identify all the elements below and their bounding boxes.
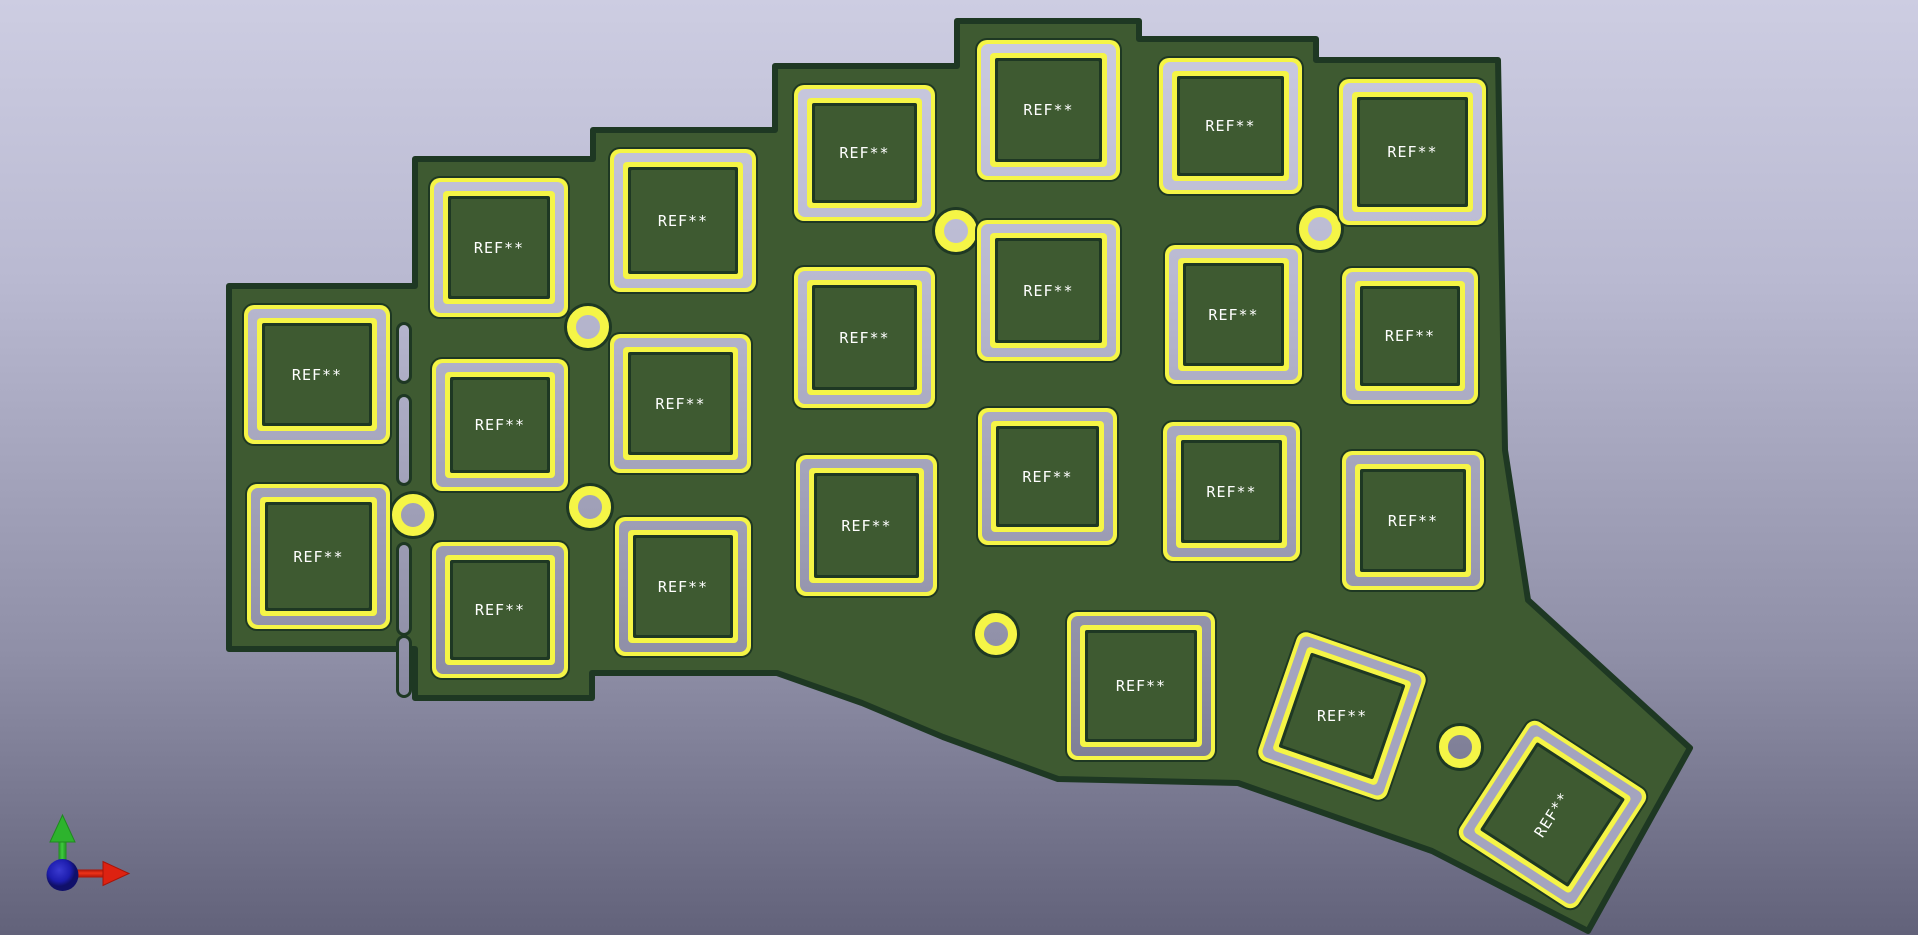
switch-footprint: REF** — [1157, 56, 1304, 196]
footprint-core: REF** — [453, 563, 547, 657]
silk-outline-inner: REF** — [1176, 435, 1287, 548]
reference-designator-label: REF** — [839, 144, 889, 162]
silk-outline-outer: REF** — [977, 220, 1120, 361]
pad-ring-silver: REF** — [1346, 272, 1474, 400]
footprint-core: REF** — [451, 199, 547, 296]
switch-footprint: REF** — [1340, 449, 1486, 592]
pad-inner-edge: REF** — [1360, 469, 1466, 572]
silk-outline-inner: REF** — [807, 280, 922, 395]
silk-outline-inner: REF** — [809, 468, 924, 583]
axis-orientation-gizmo — [10, 795, 140, 910]
breakaway-slot — [399, 638, 409, 695]
footprint-core: REF** — [1186, 266, 1281, 363]
silk-outline-outer: REF** — [1067, 612, 1215, 760]
silk-outline-outer: REF** — [432, 542, 568, 678]
footprint-core: REF** — [1484, 746, 1621, 883]
pad-inner-edge: REF** — [1278, 652, 1405, 779]
plated-hole — [1439, 726, 1481, 768]
pad-ring-silver: REF** — [436, 546, 564, 674]
reference-designator-label: REF** — [1317, 707, 1367, 725]
pad-ring-silver: REF** — [981, 224, 1116, 357]
pad-ring-silver: REF** — [436, 363, 564, 487]
silk-outline-outer: REF** — [430, 178, 568, 317]
pad-ring-silver: REF** — [1071, 616, 1211, 756]
pad-inner-edge: REF** — [450, 560, 550, 660]
pad-inner-edge: REF** — [1480, 742, 1625, 887]
pad-ring-silver: REF** — [798, 271, 931, 404]
switch-footprint: REF** — [1340, 266, 1480, 406]
silk-outline-outer: REF** — [432, 359, 568, 491]
silk-outline-outer: REF** — [244, 305, 390, 444]
reference-designator-label: REF** — [1387, 143, 1437, 161]
reference-designator-label: REF** — [658, 212, 708, 230]
silk-outline-inner: REF** — [623, 162, 743, 279]
silk-outline-inner: REF** — [445, 372, 555, 478]
switch-footprint: REF** — [1065, 610, 1217, 762]
pad-ring-silver: REF** — [434, 182, 564, 313]
pad-ring-silver: REF** — [800, 459, 933, 592]
silk-outline-outer: REF** — [796, 455, 937, 596]
switch-footprint: REF** — [428, 176, 570, 319]
silk-outline-inner: REF** — [990, 53, 1107, 167]
footprint-core: REF** — [998, 61, 1099, 159]
reference-designator-label: REF** — [1022, 468, 1072, 486]
footprint-core: REF** — [631, 355, 730, 452]
pad-inner-edge: REF** — [1177, 76, 1284, 176]
pad-ring-silver: REF** — [251, 488, 386, 625]
plated-hole — [1299, 208, 1341, 250]
switch-footprint: REF** — [792, 83, 937, 223]
reference-designator-label: REF** — [841, 517, 891, 535]
plated-hole — [935, 210, 977, 252]
silk-outline-inner: REF** — [1355, 281, 1465, 391]
silk-outline-inner: REF** — [1080, 625, 1202, 747]
pad-ring-silver: REF** — [614, 338, 747, 469]
pad-inner-edge: REF** — [996, 426, 1099, 527]
x-axis-arrow — [72, 862, 129, 886]
footprint-core: REF** — [636, 538, 730, 635]
switch-footprint: REF** — [1337, 77, 1488, 227]
footprint-core: REF** — [1088, 633, 1194, 739]
z-axis-sphere — [47, 859, 79, 891]
switch-footprint: REF** — [608, 332, 753, 475]
pad-inner-edge: REF** — [1360, 286, 1460, 386]
pad-ring-silver: REF** — [1169, 249, 1298, 380]
breakaway-slot — [399, 397, 409, 483]
switch-footprint: REF** — [976, 406, 1119, 547]
silk-outline-outer: REF** — [610, 334, 751, 473]
reference-designator-label: REF** — [1023, 282, 1073, 300]
pad-inner-edge: REF** — [633, 535, 733, 638]
pad-ring-silver: REF** — [1167, 426, 1296, 557]
pad-ring-silver: REF** — [981, 44, 1116, 176]
reference-designator-label: REF** — [1385, 327, 1435, 345]
silk-outline-inner: REF** — [991, 421, 1104, 532]
switch-footprint: REF** — [242, 303, 392, 446]
footprint-core: REF** — [1180, 79, 1281, 173]
reference-designator-label: REF** — [658, 578, 708, 596]
footprint-core: REF** — [1363, 472, 1463, 569]
switch-footprint: REF** — [613, 515, 753, 658]
pad-ring-silver: REF** — [614, 153, 752, 288]
pad-inner-edge: REF** — [1181, 440, 1282, 543]
switch-footprint: REF** — [975, 38, 1122, 182]
footprint-core: REF** — [265, 326, 369, 423]
silk-outline-inner: REF** — [628, 530, 738, 643]
reference-designator-label: REF** — [475, 601, 525, 619]
pad-inner-edge: REF** — [262, 323, 372, 426]
silk-outline-inner: REF** — [443, 191, 555, 304]
silk-outline-inner: REF** — [1172, 71, 1289, 181]
pad-inner-edge: REF** — [812, 103, 917, 203]
silk-outline-inner: REF** — [1352, 92, 1473, 212]
pad-inner-edge: REF** — [995, 238, 1102, 343]
silk-outline-outer: REF** — [615, 517, 751, 656]
silk-outline-outer: REF** — [978, 408, 1117, 545]
pad-inner-edge: REF** — [995, 58, 1102, 162]
footprint-core: REF** — [1360, 100, 1465, 204]
silk-outline-outer: REF** — [794, 85, 935, 221]
reference-designator-label: REF** — [293, 548, 343, 566]
pad-inner-edge: REF** — [265, 502, 372, 611]
pad-inner-edge: REF** — [450, 377, 550, 473]
pad-inner-edge: REF** — [1183, 263, 1284, 366]
footprint-core: REF** — [268, 505, 369, 608]
silk-outline-inner: REF** — [807, 98, 922, 208]
footprint-core: REF** — [1282, 656, 1401, 775]
pad-inner-edge: REF** — [1085, 630, 1197, 742]
silk-outline-inner: REF** — [257, 318, 377, 431]
silk-outline-inner: REF** — [260, 497, 377, 616]
silk-outline-outer: REF** — [247, 484, 390, 629]
pad-inner-edge: REF** — [814, 473, 919, 578]
reference-designator-label: REF** — [1206, 483, 1256, 501]
silk-outline-outer: REF** — [1165, 245, 1302, 384]
silk-outline-inner: REF** — [1272, 646, 1412, 786]
plated-hole — [392, 494, 434, 536]
reference-designator-label: REF** — [1531, 789, 1573, 841]
switch-footprint: REF** — [430, 540, 570, 680]
pad-ring-silver: REF** — [1346, 455, 1480, 586]
silk-outline-outer: REF** — [1159, 58, 1302, 194]
footprint-core: REF** — [817, 476, 916, 575]
reference-designator-label: REF** — [1205, 117, 1255, 135]
pad-inner-edge: REF** — [448, 196, 550, 299]
switch-footprint: REF** — [1161, 420, 1302, 563]
silk-outline-outer: REF** — [1342, 451, 1484, 590]
pad-ring-silver: REF** — [248, 309, 386, 440]
footprint-core: REF** — [1363, 289, 1457, 383]
switch-footprint: REF** — [245, 482, 392, 631]
footprint-core: REF** — [631, 170, 735, 271]
silk-outline-inner: REF** — [1178, 258, 1289, 371]
pad-ring-silver: REF** — [798, 89, 931, 217]
footprint-core: REF** — [998, 241, 1099, 340]
silk-outline-outer: REF** — [1339, 79, 1486, 225]
footprint-core: REF** — [999, 429, 1096, 524]
pad-ring-silver: REF** — [1343, 83, 1482, 221]
pcb-3d-viewport[interactable]: REF**REF**REF**REF**REF**REF**REF**REF**… — [0, 0, 1918, 935]
plated-hole — [569, 486, 611, 528]
pad-inner-edge: REF** — [1357, 97, 1468, 207]
footprint-core: REF** — [1184, 443, 1279, 540]
reference-designator-label: REF** — [1388, 512, 1438, 530]
plated-hole — [975, 613, 1017, 655]
switch-footprint: REF** — [975, 218, 1122, 363]
switch-footprint: REF** — [794, 453, 939, 598]
reference-designator-label: REF** — [839, 329, 889, 347]
silk-outline-inner: REF** — [990, 233, 1107, 348]
reference-designator-label: REF** — [475, 416, 525, 434]
pad-inner-edge: REF** — [628, 167, 738, 274]
reference-designator-label: REF** — [292, 366, 342, 384]
silk-outline-outer: REF** — [1342, 268, 1478, 404]
switch-footprint: REF** — [608, 147, 758, 294]
silk-outline-outer: REF** — [977, 40, 1120, 180]
silk-outline-inner: REF** — [623, 347, 738, 460]
pad-ring-silver: REF** — [982, 412, 1113, 541]
reference-designator-label: REF** — [474, 239, 524, 257]
silk-outline-inner: REF** — [1355, 464, 1471, 577]
breakaway-slot — [399, 325, 409, 381]
breakaway-slot — [399, 545, 409, 633]
silk-outline-outer: REF** — [610, 149, 756, 292]
pad-ring-silver: REF** — [1163, 62, 1298, 190]
plated-hole — [567, 306, 609, 348]
reference-designator-label: REF** — [655, 395, 705, 413]
silk-outline-outer: REF** — [1163, 422, 1300, 561]
switch-footprint: REF** — [430, 357, 570, 493]
reference-designator-label: REF** — [1023, 101, 1073, 119]
switch-footprint: REF** — [1163, 243, 1304, 386]
footprint-core: REF** — [815, 288, 914, 387]
silk-outline-inner: REF** — [445, 555, 555, 665]
reference-designator-label: REF** — [1116, 677, 1166, 695]
footprint-core: REF** — [815, 106, 914, 200]
footprint-core: REF** — [453, 380, 547, 470]
silk-outline-outer: REF** — [794, 267, 935, 408]
reference-designator-label: REF** — [1208, 306, 1258, 324]
pad-ring-silver: REF** — [619, 521, 747, 652]
switch-footprint: REF** — [792, 265, 937, 410]
pad-inner-edge: REF** — [812, 285, 917, 390]
pad-inner-edge: REF** — [628, 352, 733, 455]
